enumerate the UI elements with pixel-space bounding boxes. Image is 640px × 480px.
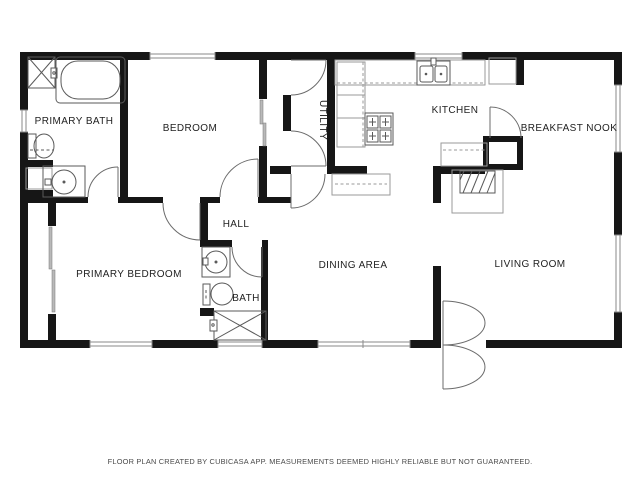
primary-bedroom-door bbox=[163, 203, 200, 240]
room-label-bedroom: BEDROOM bbox=[163, 123, 217, 134]
primary-bath-door bbox=[88, 167, 118, 197]
bar-counter bbox=[332, 174, 390, 195]
bath-toilet-icon bbox=[203, 283, 233, 305]
hall-bath-door bbox=[232, 247, 262, 277]
window-primary-bath bbox=[20, 110, 28, 132]
kitchen-fixtures bbox=[332, 58, 516, 195]
footer-disclaimer: FLOOR PLAN CREATED BY CUBICASA APP. MEAS… bbox=[108, 457, 533, 466]
kitchen-counter-top bbox=[335, 60, 485, 85]
room-label-primary-bedroom: PRIMARY BEDROOM bbox=[76, 269, 182, 280]
window-primary-bedroom bbox=[90, 340, 152, 348]
kitchen-sink-icon bbox=[417, 58, 450, 85]
refrigerator-icon bbox=[489, 58, 516, 84]
window-living-room bbox=[614, 235, 622, 312]
utility-door-top bbox=[291, 60, 326, 95]
breakfast-nook-door bbox=[490, 107, 521, 138]
window-bedroom bbox=[150, 52, 215, 60]
room-label-bath: BATH bbox=[232, 293, 260, 304]
floor-plan: PRIMARY BATH BEDROOM UTILITY KITCHEN BRE… bbox=[0, 0, 640, 480]
room-label-dining-area: DINING AREA bbox=[319, 260, 388, 271]
room-label-living-room: LIVING ROOM bbox=[494, 259, 565, 270]
window-bath bbox=[218, 340, 262, 348]
stove-icon bbox=[365, 113, 393, 145]
bath-shower-icon bbox=[210, 311, 266, 340]
bathtub-icon bbox=[56, 57, 125, 103]
window-kitchen bbox=[415, 52, 462, 60]
room-label-kitchen: KITCHEN bbox=[432, 105, 479, 116]
toilet-icon bbox=[28, 134, 54, 158]
primary-bath-fixtures bbox=[26, 57, 125, 197]
room-label-hall: HALL bbox=[223, 219, 250, 230]
closet-sliders bbox=[49, 100, 266, 312]
shower-icon bbox=[28, 57, 57, 88]
window-breakfast-nook bbox=[614, 85, 622, 152]
bedroom-door bbox=[220, 159, 258, 197]
bath-sink-icon bbox=[202, 247, 230, 277]
room-label-breakfast-nook: BREAKFAST NOOK bbox=[521, 123, 618, 134]
room-label-utility: UTILITY bbox=[317, 100, 328, 140]
room-label-primary-bath: PRIMARY BATH bbox=[35, 116, 114, 127]
kitchen-counter-left bbox=[337, 62, 365, 147]
floor-plan-canvas: PRIMARY BATH BEDROOM UTILITY KITCHEN BRE… bbox=[0, 0, 640, 480]
window-dining bbox=[318, 340, 410, 348]
fireplace-icon bbox=[452, 170, 503, 213]
utility-hall-door bbox=[291, 174, 325, 208]
kitchen-counter-bottom bbox=[441, 143, 487, 166]
